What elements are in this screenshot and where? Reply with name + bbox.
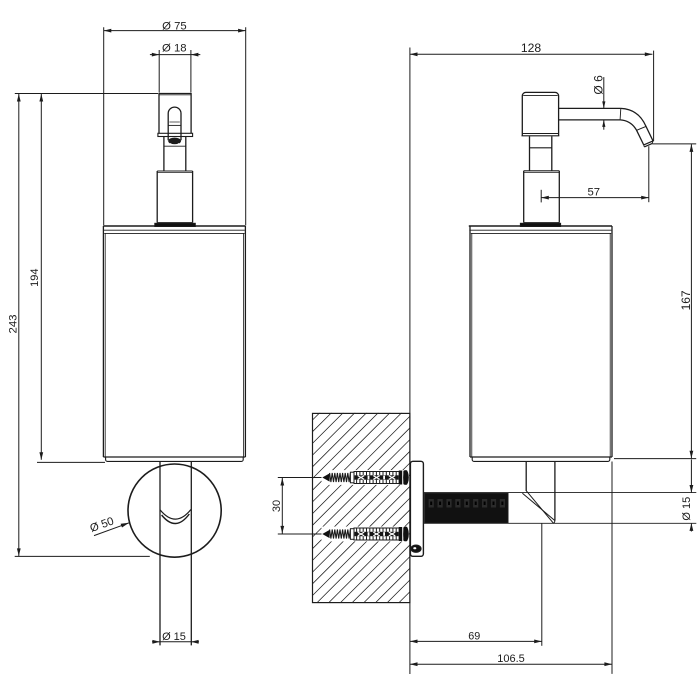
svg-text:Ø 75: Ø 75 <box>162 20 187 32</box>
svg-text:69: 69 <box>468 631 480 643</box>
svg-text:106.5: 106.5 <box>497 653 525 665</box>
svg-text:128: 128 <box>521 41 542 55</box>
svg-text:Ø 15: Ø 15 <box>681 497 693 521</box>
svg-text:30: 30 <box>271 500 283 512</box>
svg-text:243: 243 <box>7 314 19 333</box>
svg-text:57: 57 <box>588 186 601 198</box>
svg-text:194: 194 <box>29 269 41 287</box>
svg-text:Ø 6: Ø 6 <box>592 75 606 95</box>
svg-text:Ø 18: Ø 18 <box>162 43 187 55</box>
svg-text:167: 167 <box>679 290 693 310</box>
svg-text:Ø 15: Ø 15 <box>162 631 186 643</box>
